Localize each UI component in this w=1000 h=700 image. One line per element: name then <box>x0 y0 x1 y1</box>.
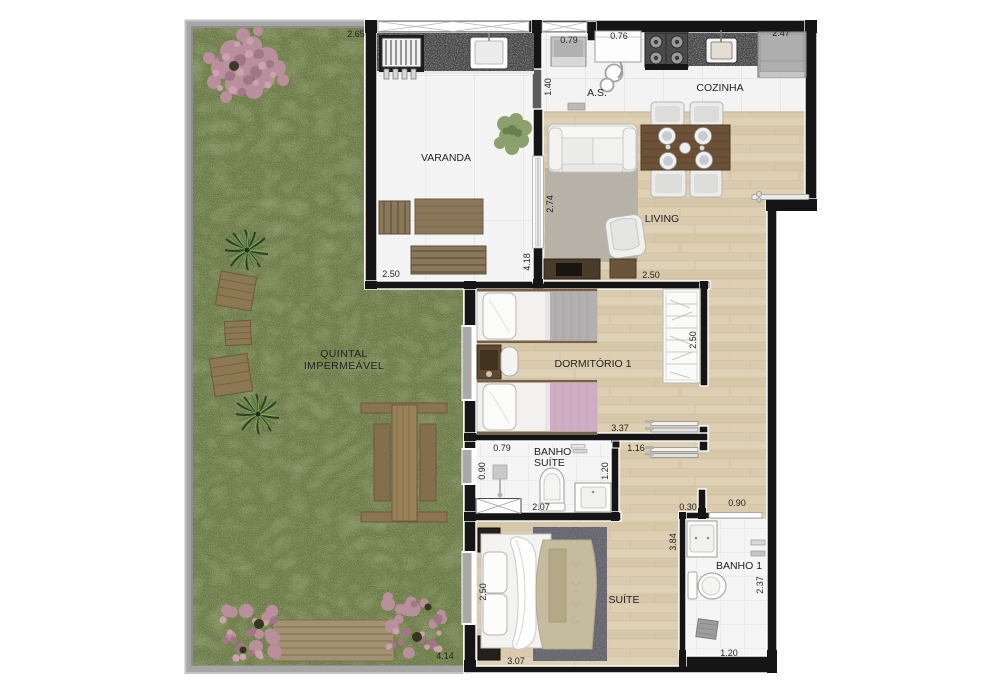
svg-text:1.16: 1.16 <box>627 443 645 453</box>
svg-text:2.50: 2.50 <box>688 331 698 349</box>
svg-text:2.74: 2.74 <box>545 195 555 213</box>
svg-text:SUÍTE: SUÍTE <box>609 593 640 606</box>
svg-text:3.07: 3.07 <box>507 656 525 666</box>
svg-text:0.79: 0.79 <box>560 35 578 45</box>
svg-text:2.50: 2.50 <box>642 270 660 280</box>
svg-text:2.07: 2.07 <box>532 502 550 512</box>
svg-text:2.50: 2.50 <box>382 269 400 279</box>
svg-text:2.37: 2.37 <box>755 576 765 594</box>
svg-text:2.47: 2.47 <box>772 28 790 38</box>
svg-text:BANHO 1: BANHO 1 <box>716 560 762 572</box>
svg-text:3.37: 3.37 <box>611 423 629 433</box>
svg-text:0.30: 0.30 <box>679 502 697 512</box>
svg-text:4.14: 4.14 <box>436 651 454 661</box>
svg-text:1.40: 1.40 <box>543 78 553 96</box>
svg-text:0.90: 0.90 <box>728 498 746 508</box>
svg-text:2.50: 2.50 <box>478 583 488 601</box>
svg-text:LIVING: LIVING <box>645 213 679 225</box>
svg-text:DORMITÓRIO 1: DORMITÓRIO 1 <box>554 357 631 370</box>
svg-text:A.S.: A.S. <box>587 87 607 99</box>
svg-text:1.20: 1.20 <box>600 462 610 480</box>
svg-text:IMPERMEÁVEL: IMPERMEÁVEL <box>304 359 384 372</box>
svg-text:3.84: 3.84 <box>668 533 678 551</box>
svg-text:COZINHA: COZINHA <box>696 82 743 94</box>
svg-text:0.90: 0.90 <box>477 462 487 480</box>
svg-text:0.76: 0.76 <box>610 31 628 41</box>
svg-text:VARANDA: VARANDA <box>421 152 471 164</box>
svg-text:1.20: 1.20 <box>720 648 738 658</box>
svg-text:0.79: 0.79 <box>493 443 511 453</box>
svg-text:QUINTAL: QUINTAL <box>320 348 368 360</box>
svg-text:2.65: 2.65 <box>347 29 365 39</box>
svg-text:4.18: 4.18 <box>522 253 532 271</box>
svg-text:SUÍTE: SUÍTE <box>534 456 565 469</box>
